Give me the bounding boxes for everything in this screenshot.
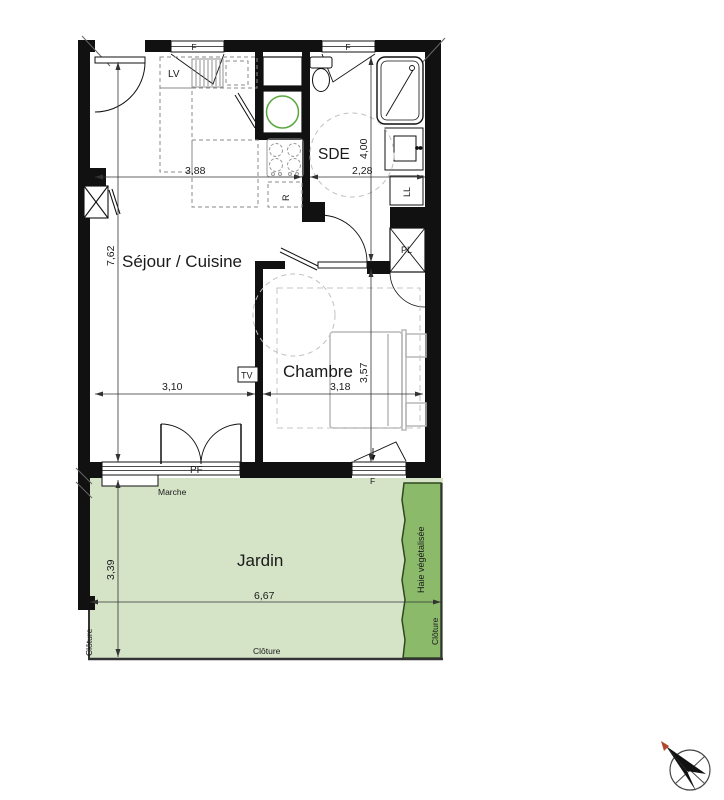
entry-door xyxy=(95,57,145,112)
bedroom-clearance-zone xyxy=(277,288,420,428)
garden-label: Jardin xyxy=(237,551,283,570)
tv-label: TV xyxy=(241,371,253,381)
bathroom-door xyxy=(318,215,367,268)
floorplan-canvas: { "plan": { "rooms": { "living": "Séjour… xyxy=(0,0,724,800)
bedroom-label: Chambre xyxy=(283,362,353,381)
french-door xyxy=(102,424,241,486)
dim-bathroom-depth: 4,00 xyxy=(358,138,370,159)
french-door-label: PF xyxy=(190,465,203,476)
north-compass-icon xyxy=(661,741,710,791)
bedroom-door xyxy=(280,248,318,270)
dim-living-width: 3,10 xyxy=(162,381,183,393)
dishwasher-label: LV xyxy=(168,69,180,80)
dim-garden-width: 6,67 xyxy=(254,590,275,602)
window-bathroom-label: F xyxy=(345,42,350,52)
washer-label: LL xyxy=(402,187,412,197)
window-bedroom-label: F xyxy=(370,476,375,486)
shower xyxy=(377,57,423,124)
technical-cabinet xyxy=(84,186,120,218)
tv-unit: TV xyxy=(238,367,258,382)
fridge-label: R xyxy=(281,194,291,201)
step-slab xyxy=(102,475,158,486)
dim-living-depth: 7,62 xyxy=(105,245,117,266)
sink-drainer xyxy=(192,59,223,87)
dim-bedroom-depth: 3,57 xyxy=(358,362,370,383)
closet-label: PL xyxy=(401,245,412,255)
tech-column xyxy=(235,57,302,133)
fridge-box xyxy=(268,182,302,207)
fence-label-left: Clôture xyxy=(84,628,94,656)
window-kitchen-label: F xyxy=(191,42,196,52)
fence-label-right: Clôture xyxy=(430,617,440,645)
dim-bathroom-width: 2,28 xyxy=(352,165,373,177)
dim-kitchen-width: 3,88 xyxy=(185,165,206,177)
bedroom-clearance-circle xyxy=(253,274,335,356)
cooktop xyxy=(267,139,303,177)
vanity-sink xyxy=(385,128,423,170)
toilet xyxy=(310,57,332,92)
washing-machine: LL xyxy=(390,176,423,205)
floorplan-svg: F F LV R xyxy=(0,0,724,800)
step-label: Marche xyxy=(158,487,187,497)
bathroom-label: SDE xyxy=(318,146,350,163)
hedge-label: Haie végétalisée xyxy=(416,526,426,593)
dim-bedroom-width: 3,18 xyxy=(330,381,351,393)
dim-garden-depth: 3,39 xyxy=(105,559,117,580)
living-room-label: Séjour / Cuisine xyxy=(122,252,242,271)
fence-label-bottom: Clôture xyxy=(253,646,281,656)
window-bedroom xyxy=(352,442,406,475)
